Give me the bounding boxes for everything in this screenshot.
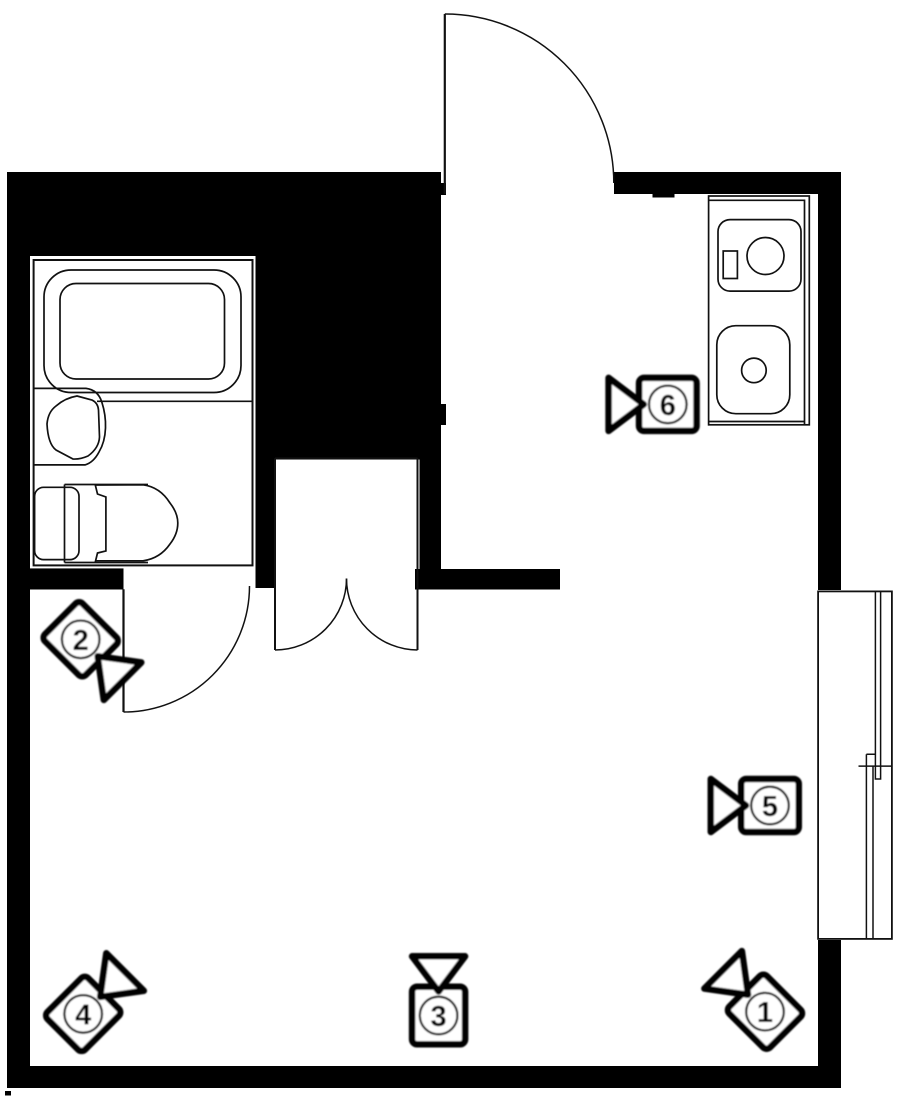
svg-text:4: 4: [75, 999, 91, 1031]
svg-text:5: 5: [762, 791, 778, 823]
svg-text:6: 6: [660, 390, 676, 422]
svg-text:1: 1: [757, 997, 773, 1029]
svg-text:3: 3: [431, 1001, 447, 1033]
svg-text:2: 2: [73, 625, 89, 657]
